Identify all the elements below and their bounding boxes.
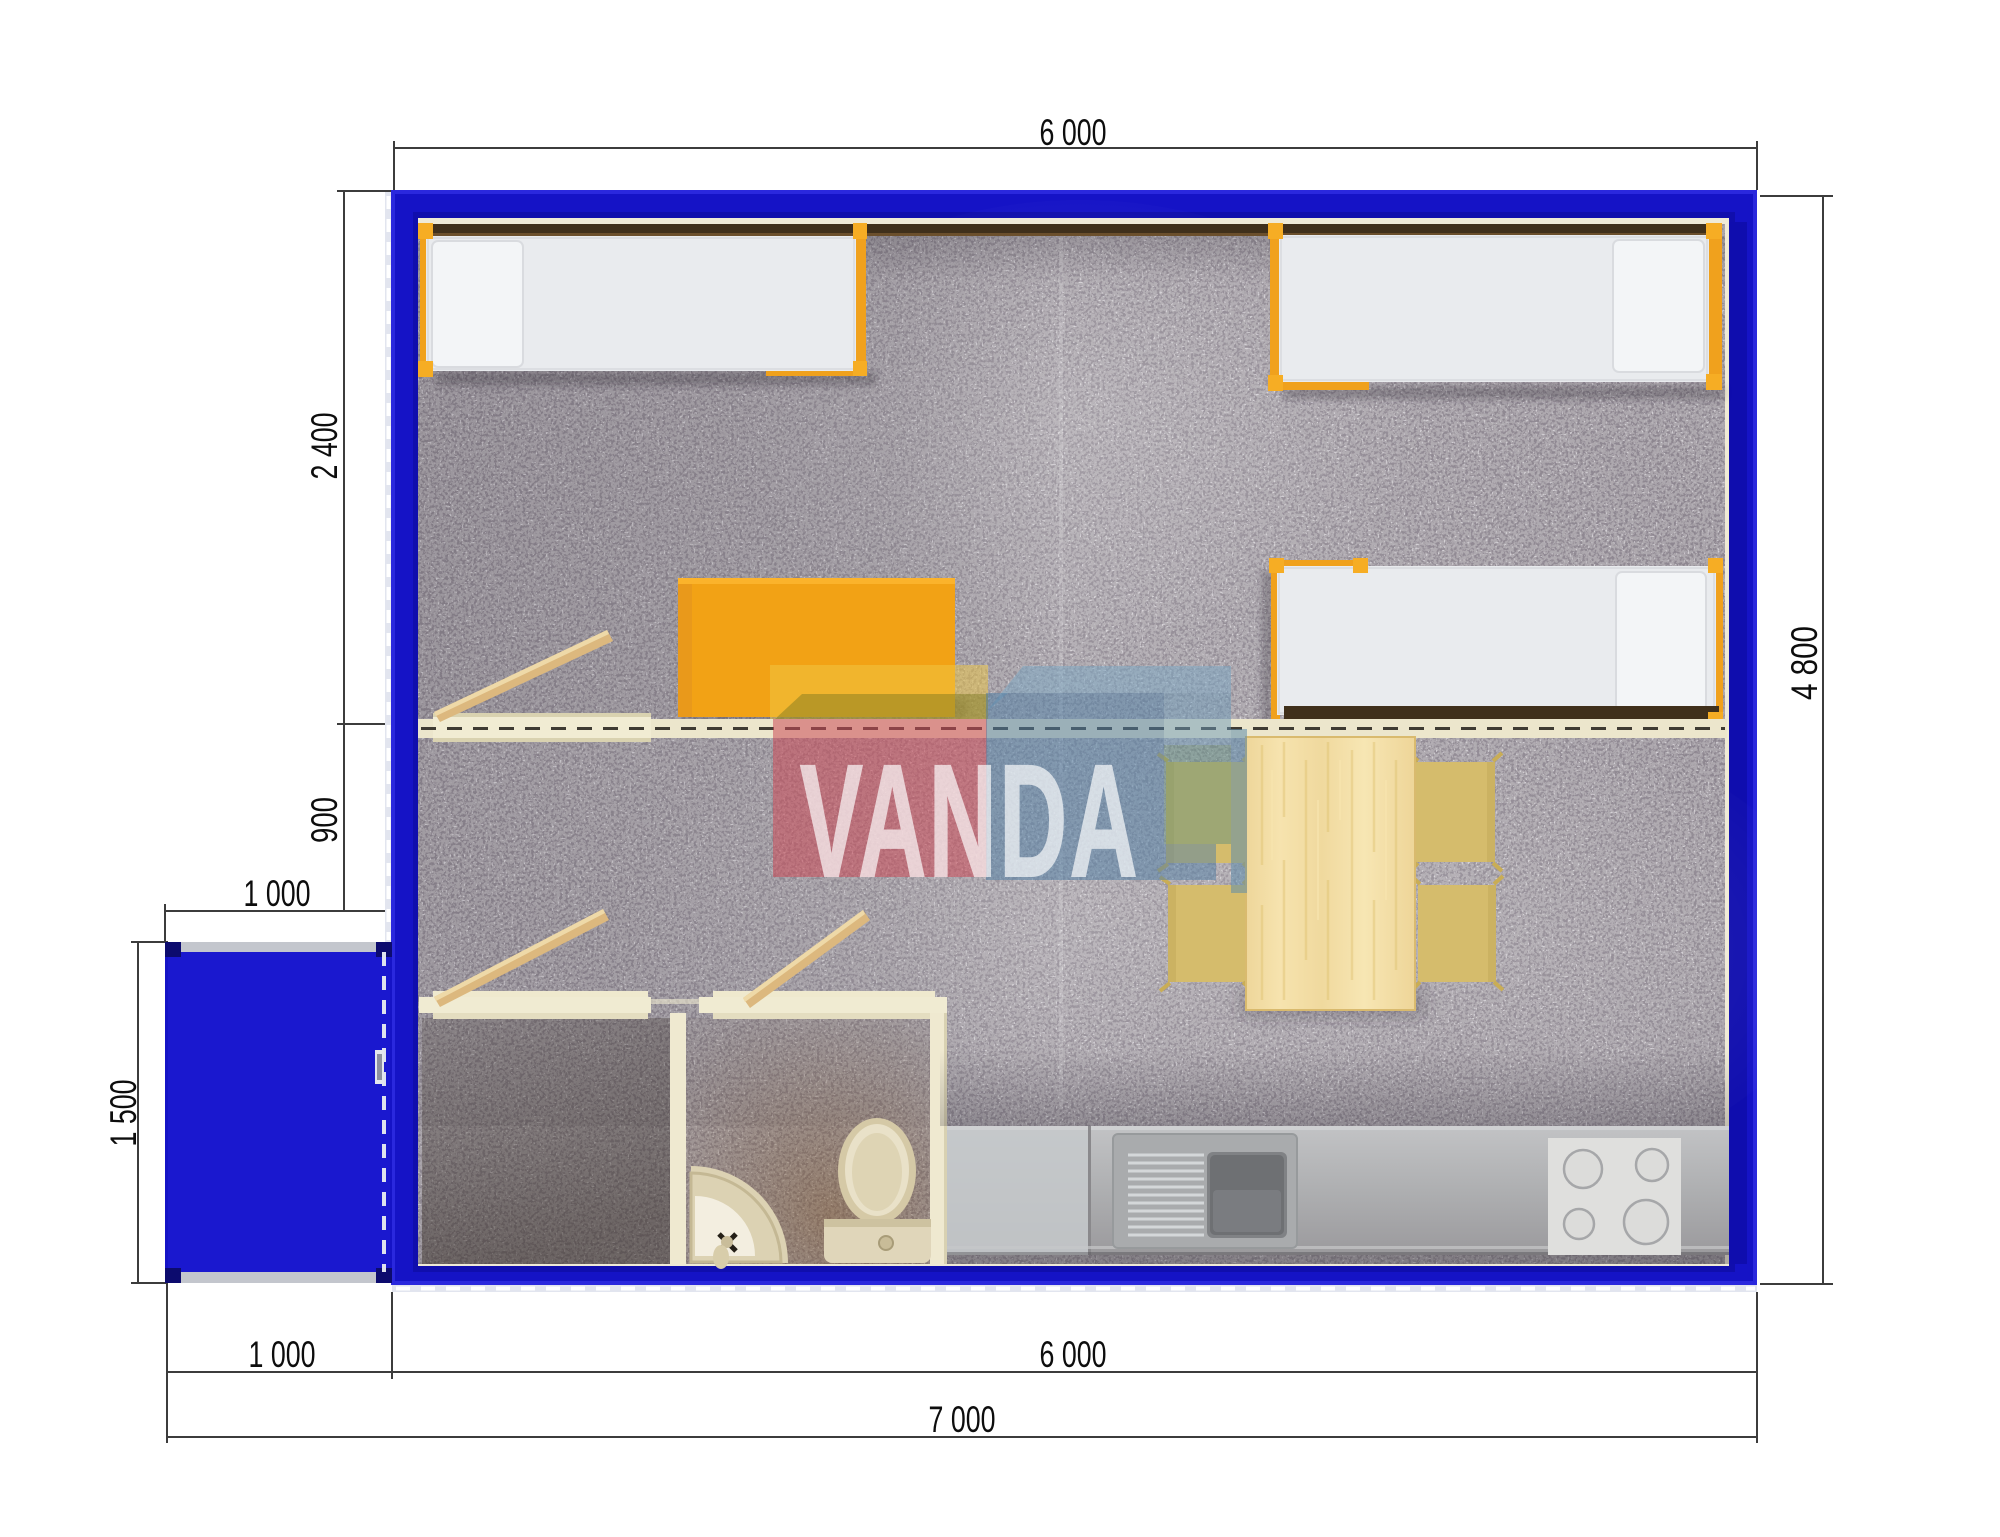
svg-text:1 000: 1 000 — [249, 1334, 316, 1375]
svg-text:900: 900 — [304, 797, 345, 843]
svg-text:6 000: 6 000 — [1040, 112, 1107, 153]
svg-text:7 000: 7 000 — [929, 1399, 996, 1440]
svg-text:VANDA: VANDA — [800, 731, 1140, 910]
svg-text:4 800: 4 800 — [1784, 626, 1825, 700]
svg-text:2 400: 2 400 — [304, 413, 345, 480]
svg-text:1 500: 1 500 — [103, 1080, 144, 1147]
svg-text:6 000: 6 000 — [1040, 1334, 1107, 1375]
svg-text:1 000: 1 000 — [244, 873, 311, 914]
